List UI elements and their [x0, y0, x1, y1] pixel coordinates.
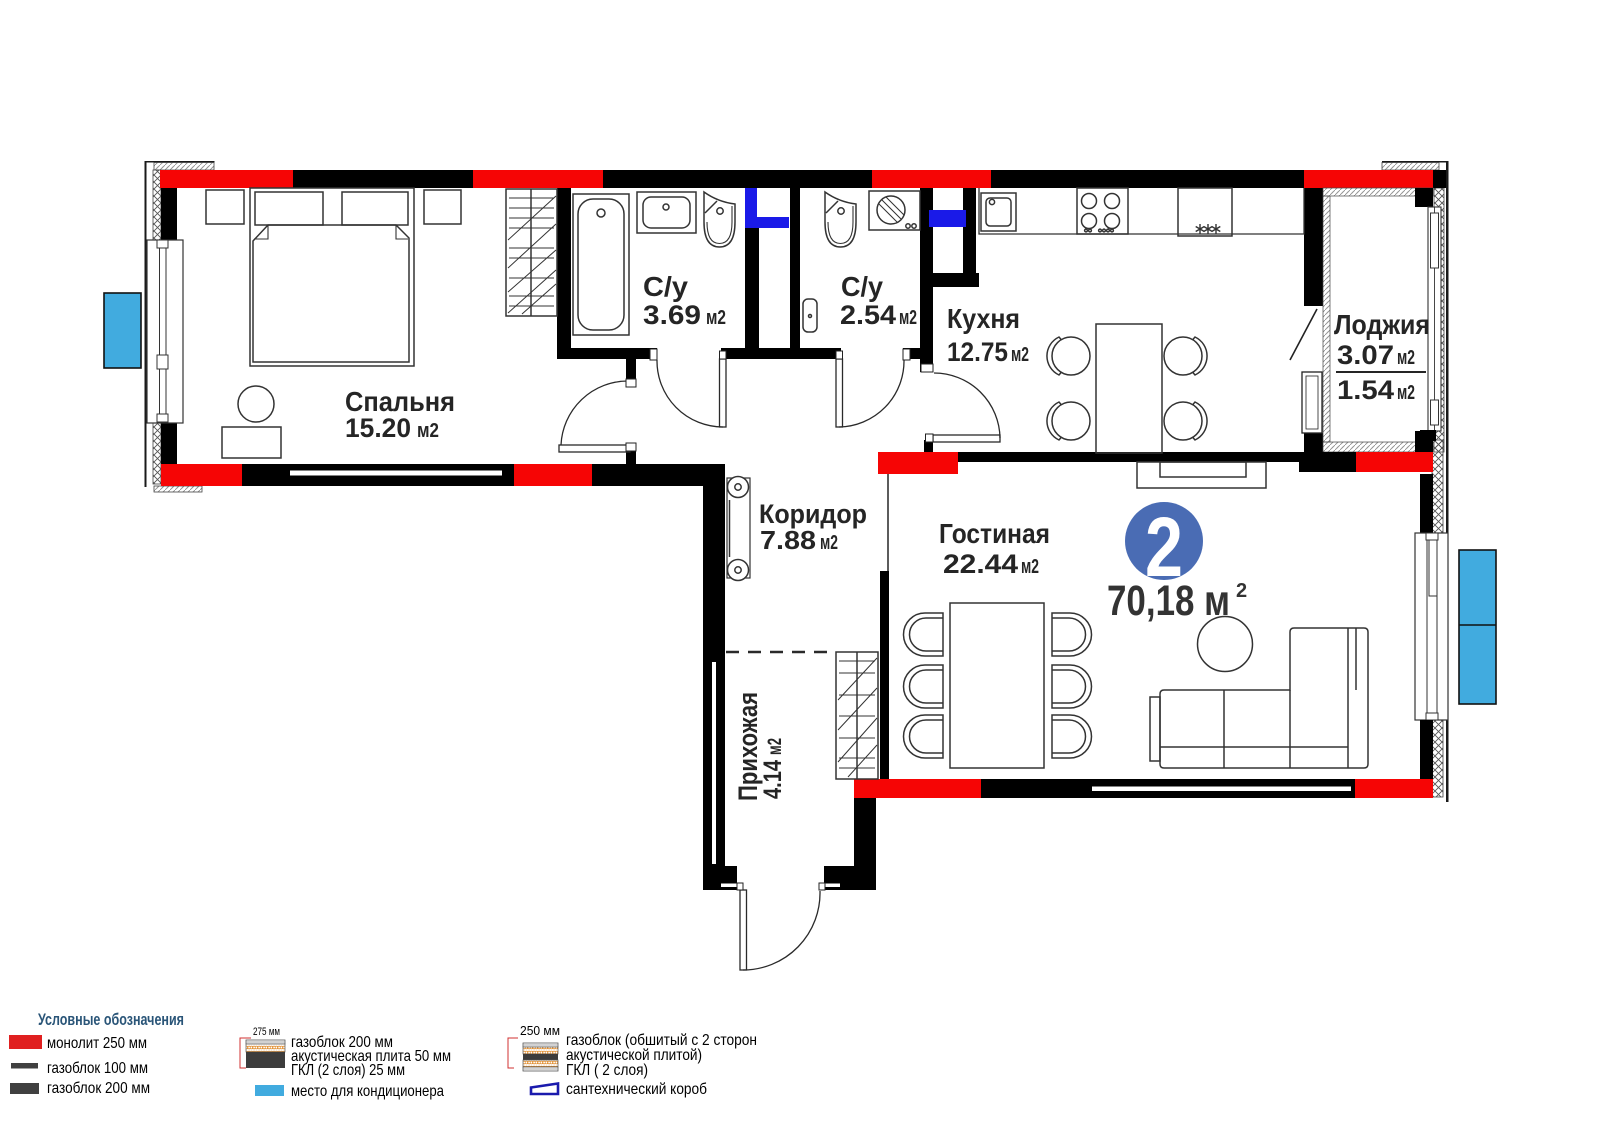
svg-text:7.88: 7.88 — [760, 525, 816, 555]
svg-text:м2: м2 — [417, 420, 439, 442]
svg-text:С/у: С/у — [841, 271, 883, 302]
svg-text:ГКЛ ( 2 слоя): ГКЛ ( 2 слоя) — [566, 1062, 648, 1079]
svg-text:м2: м2 — [899, 307, 917, 329]
svg-text:3.69: 3.69 — [643, 300, 701, 330]
svg-text:газоблок 100 мм: газоблок 100 мм — [47, 1060, 148, 1077]
svg-text:ГКЛ (2 слоя) 25 мм: ГКЛ (2 слоя) 25 мм — [291, 1062, 405, 1079]
svg-text:м2: м2 — [820, 532, 838, 554]
svg-text:4.14: 4.14 — [759, 760, 787, 799]
svg-text:сантехнический короб: сантехнический короб — [566, 1081, 707, 1098]
svg-text:С/у: С/у — [643, 271, 688, 302]
svg-text:1.54: 1.54 — [1337, 375, 1394, 405]
svg-text:м2: м2 — [706, 307, 726, 329]
svg-text:Условные обозначения: Условные обозначения — [38, 1010, 184, 1029]
svg-text:3.07: 3.07 — [1337, 340, 1394, 370]
svg-text:м2: м2 — [1397, 382, 1415, 404]
svg-text:м2: м2 — [1397, 347, 1415, 369]
svg-text:22.44: 22.44 — [943, 549, 1018, 579]
svg-text:газоблок 200 мм: газоблок 200 мм — [47, 1080, 150, 1097]
svg-text:монолит 250 мм: монолит 250 мм — [47, 1035, 147, 1052]
svg-text:15.20: 15.20 — [345, 413, 411, 443]
svg-text:275 мм: 275 мм — [253, 1026, 280, 1038]
svg-text:место для кондиционера: место для кондиционера — [291, 1083, 444, 1100]
svg-text:м2: м2 — [1021, 556, 1039, 578]
svg-text:Гостиная: Гостиная — [939, 518, 1050, 549]
svg-text:2: 2 — [1236, 580, 1247, 602]
svg-text:Лоджия: Лоджия — [1334, 309, 1430, 340]
svg-text:250 мм: 250 мм — [520, 1023, 560, 1038]
svg-text:70,18 м: 70,18 м — [1107, 577, 1230, 625]
svg-text:м2: м2 — [765, 738, 786, 755]
svg-text:Кухня: Кухня — [947, 303, 1020, 334]
svg-text:2.54: 2.54 — [840, 300, 896, 330]
svg-text:м2: м2 — [1011, 344, 1029, 366]
svg-text:12.75: 12.75 — [947, 337, 1008, 367]
